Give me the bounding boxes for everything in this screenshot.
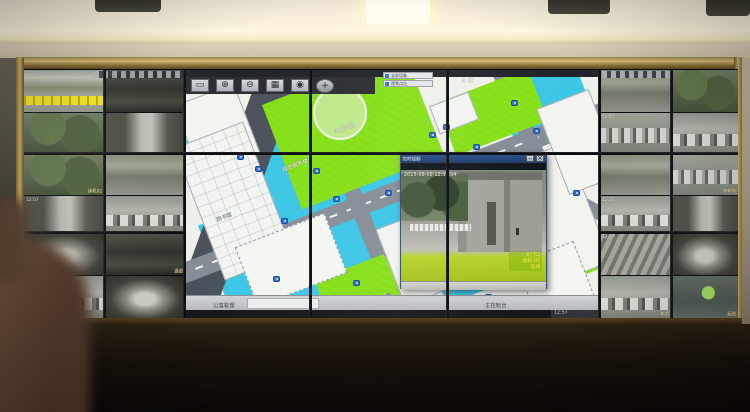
- camera-marker-icon[interactable]: [255, 166, 262, 172]
- feed-toolbar[interactable]: [94, 71, 184, 78]
- layers-tool-button[interactable]: ▦: [266, 79, 284, 92]
- camera-feed[interactable]: [105, 196, 185, 232]
- popup-title: 实时视频: [401, 155, 464, 162]
- camera-feed[interactable]: 12:57: [600, 196, 671, 232]
- minimize-button[interactable]: –: [526, 155, 534, 162]
- zoom-out-tool-button[interactable]: ⊖: [241, 79, 259, 92]
- live-video-frame[interactable]: 2015-08-08 12:57:04 大门口 球机-01 在线: [401, 170, 546, 281]
- osd-timestamp: 12:57: [26, 197, 39, 202]
- cove-light: [0, 18, 750, 46]
- camera-marker-icon[interactable]: [533, 128, 540, 134]
- zoom-in-tool-button[interactable]: ⊕: [216, 79, 234, 92]
- map-statusbar[interactable]: 公寓管理 主控制台: [185, 295, 600, 310]
- camera-marker-icon[interactable]: [353, 280, 360, 286]
- statusbar-right-label: 主控制台: [485, 302, 507, 310]
- camera-feed[interactable]: 停车场: [672, 154, 738, 195]
- popup-status-label: 云台控制: [401, 289, 421, 290]
- camera-feed[interactable]: [672, 70, 738, 112]
- checkbox-icon: [385, 74, 389, 78]
- camera-feed[interactable]: 通道: [105, 233, 185, 275]
- camera-marker-icon[interactable]: [273, 276, 280, 282]
- camera-feed[interactable]: [600, 154, 671, 195]
- statusbar-left-label: 公寓管理: [213, 302, 235, 310]
- layer-label: 视频点位: [391, 81, 407, 87]
- monitor-bezel: [24, 231, 185, 234]
- monitor-bezel: [598, 70, 601, 318]
- ceiling: [0, 0, 750, 58]
- hand-silhouette: [0, 198, 28, 282]
- camera-marker-icon[interactable]: [313, 168, 320, 174]
- locate-tool-button[interactable]: ◉: [291, 79, 309, 92]
- camera-marker-icon[interactable]: [333, 196, 340, 202]
- ceiling-vent: [548, 0, 610, 14]
- monitor-bezel: [446, 70, 449, 318]
- camera-feed[interactable]: 后院: [672, 276, 738, 318]
- camera-feed[interactable]: 12:57: [600, 233, 671, 275]
- camera-feed[interactable]: 车道: [600, 276, 671, 318]
- ceiling-vent: [706, 0, 750, 16]
- camera-label-line: 球机-01: [523, 259, 540, 263]
- osd-timestamp: 12:57: [602, 234, 615, 239]
- pedestrian: [516, 228, 519, 235]
- camera-feed[interactable]: [672, 113, 738, 153]
- taskbar-tray[interactable]: 12:57: [551, 310, 599, 318]
- osd-timestamp: 12:57: [602, 197, 615, 202]
- osd-timestamp: 12:57: [602, 114, 615, 119]
- camera-feed[interactable]: [672, 233, 738, 275]
- fence: [410, 224, 471, 231]
- feed-toolbar[interactable]: [602, 71, 672, 78]
- layer-panel: 全部设备视频点位: [383, 72, 433, 88]
- checkbox-icon: [385, 82, 389, 86]
- monitor-bezel: [24, 152, 738, 155]
- osd-camera-label: 球机02: [88, 188, 102, 194]
- layer-toggle[interactable]: 全部设备: [383, 72, 433, 79]
- camera-label-line: 大门口: [523, 253, 540, 257]
- live-video-popup[interactable]: 实时视频 – × 大门口球机-01 [主码流] - 视频监控 2015-08-0…: [400, 152, 547, 289]
- osd-timestamp: 12:57:04: [26, 71, 46, 76]
- monitor-bezel: [600, 231, 738, 234]
- camera-feed[interactable]: 球机02: [24, 154, 104, 195]
- trees: [401, 174, 468, 221]
- layer-toggle[interactable]: 视频点位: [383, 80, 433, 87]
- videowall-frame: [16, 318, 742, 325]
- popup-statusbar[interactable]: 云台控制: [401, 281, 546, 290]
- tray-clock: 12:57: [554, 310, 568, 315]
- osd-camera-label: 停车场: [723, 188, 736, 194]
- camera-feed[interactable]: [105, 154, 185, 195]
- osd-camera-label: 车道: [660, 311, 669, 317]
- camera-marker-icon[interactable]: [573, 190, 580, 196]
- map-toolbar: ▭⊕⊖▦◉+: [185, 77, 375, 94]
- camera-marker-icon[interactable]: [385, 190, 392, 196]
- close-button[interactable]: ×: [536, 155, 544, 162]
- monitor-bezel: [670, 70, 673, 318]
- campus-map[interactable]: 入 口中心花园综合服务楼图书馆学生宿舍区 ▭⊕⊖▦◉+ 全部设备视频点位 公寓管…: [185, 70, 600, 318]
- right-camera-grid: 12:57:0412:57停车场12:5712:57车道后院: [600, 70, 738, 318]
- camera-label-line: 在线: [523, 265, 540, 269]
- alert-banner: [24, 96, 104, 105]
- camera-label-overlay: 大门口 球机-01 在线: [509, 251, 542, 271]
- camera-marker-icon[interactable]: [511, 100, 518, 106]
- camera-feed[interactable]: 12:57: [24, 196, 104, 232]
- osd-camera-label: 后院: [727, 311, 736, 317]
- ceiling-vent: [95, 0, 161, 12]
- gate-building: [458, 172, 542, 252]
- camera-feed[interactable]: 12:57:04: [24, 70, 104, 112]
- room-wall-bottom: [0, 324, 750, 412]
- monitor-bezel: [309, 70, 312, 318]
- camera-feed[interactable]: [672, 196, 738, 232]
- layer-label: 全部设备: [391, 73, 407, 79]
- popup-subtitle-bar: 大门口球机-01 [主码流] - 视频监控: [401, 163, 546, 170]
- camera-feed[interactable]: [105, 113, 185, 153]
- camera-marker-icon[interactable]: [281, 218, 288, 224]
- select-tool-button[interactable]: ▭: [191, 79, 209, 92]
- camera-feed[interactable]: [24, 113, 104, 153]
- taskbar: [185, 310, 600, 318]
- camera-marker-icon[interactable]: [473, 144, 480, 150]
- monitor-bezel: [103, 70, 106, 318]
- camera-feed[interactable]: [105, 276, 185, 318]
- osd-camera-label: 通道: [174, 268, 183, 274]
- monitor-bezel: [183, 70, 186, 318]
- control-room-photo: 12:57:0412:57球机0212:57通道12:57 12:57:0412…: [0, 0, 750, 412]
- camera-marker-icon[interactable]: [429, 132, 436, 138]
- videowall-frame: [16, 57, 742, 69]
- camera-feed[interactable]: 12:57: [600, 113, 671, 153]
- pan-control[interactable]: +: [316, 79, 334, 93]
